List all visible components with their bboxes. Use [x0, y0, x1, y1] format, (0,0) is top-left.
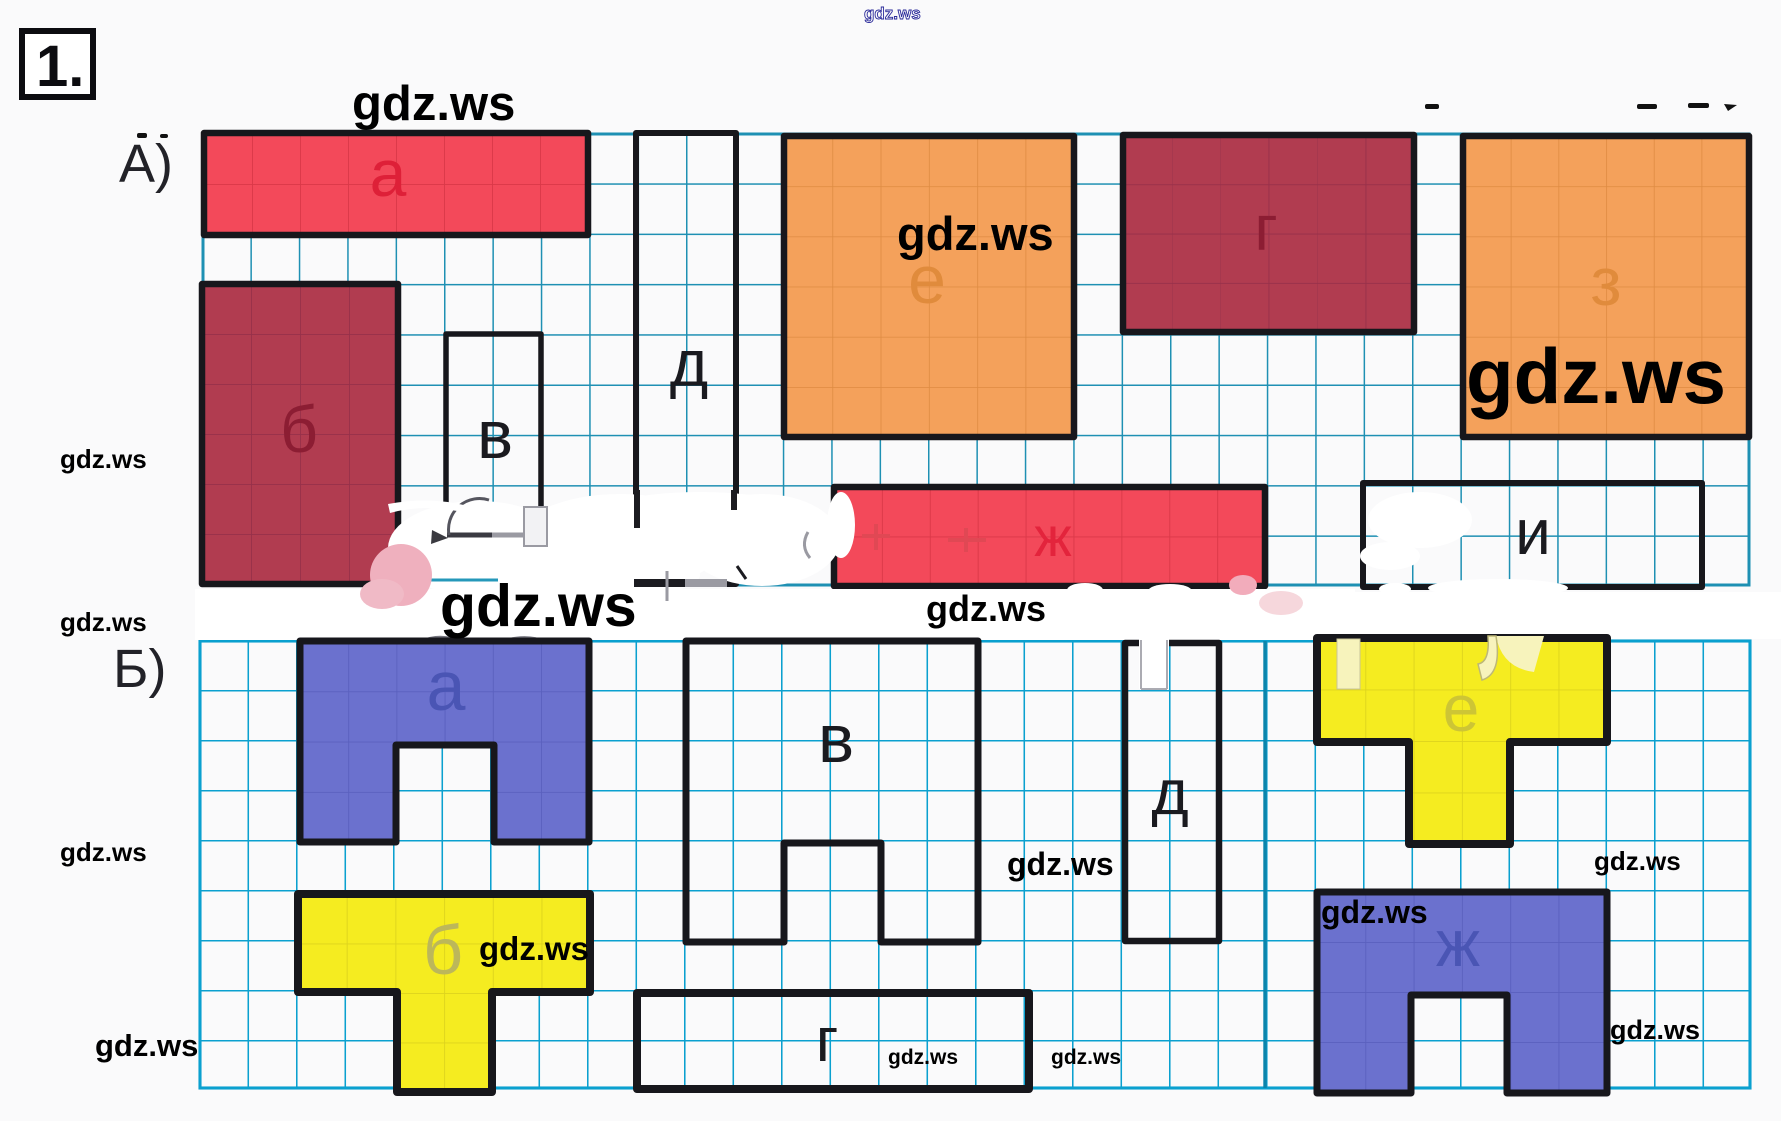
svg-text:и: и	[1515, 496, 1551, 568]
svg-text:gdz.ws: gdz.ws	[60, 444, 147, 474]
svg-text:А): А)	[119, 134, 173, 194]
svg-text:gdz.ws: gdz.ws	[352, 77, 515, 131]
svg-text:gdz.ws: gdz.ws	[1321, 894, 1428, 930]
svg-text:gdz.ws: gdz.ws	[897, 207, 1054, 260]
svg-text:gdz.ws: gdz.ws	[888, 1046, 958, 1069]
svg-text:1.: 1.	[36, 34, 84, 99]
svg-text:gdz.ws: gdz.ws	[926, 588, 1046, 629]
svg-text:а: а	[427, 647, 466, 725]
svg-text:б: б	[280, 392, 318, 466]
svg-text:gdz.ws: gdz.ws	[440, 573, 637, 639]
svg-text:gdz.ws: gdz.ws	[60, 607, 147, 637]
svg-text:а: а	[370, 136, 407, 210]
svg-text:ж: ж	[1436, 906, 1480, 980]
svg-text:г: г	[1254, 192, 1277, 264]
svg-text:б: б	[423, 911, 463, 989]
svg-text:г: г	[816, 1006, 839, 1075]
svg-text:gdz.ws: gdz.ws	[1007, 846, 1114, 882]
svg-text:gdz.ws: gdz.ws	[1051, 1046, 1121, 1069]
svg-text:д: д	[1151, 756, 1188, 828]
svg-text:gdz.ws: gdz.ws	[95, 1028, 198, 1063]
svg-text:gdz.ws: gdz.ws	[1466, 332, 1726, 420]
svg-text:в: в	[477, 397, 513, 473]
svg-text:gdz.ws: gdz.ws	[864, 4, 921, 23]
svg-text:е: е	[1443, 671, 1480, 745]
svg-text:gdz.ws: gdz.ws	[1610, 1015, 1700, 1045]
svg-text:gdz.ws: gdz.ws	[479, 930, 589, 967]
svg-text:gdz.ws: gdz.ws	[1594, 846, 1681, 876]
svg-text:ж: ж	[1034, 505, 1072, 568]
svg-text:д: д	[670, 326, 709, 400]
svg-text:Б): Б)	[113, 639, 166, 699]
svg-text:з: з	[1590, 244, 1621, 320]
svg-text:gdz.ws: gdz.ws	[60, 837, 147, 867]
svg-text:в: в	[818, 701, 854, 777]
